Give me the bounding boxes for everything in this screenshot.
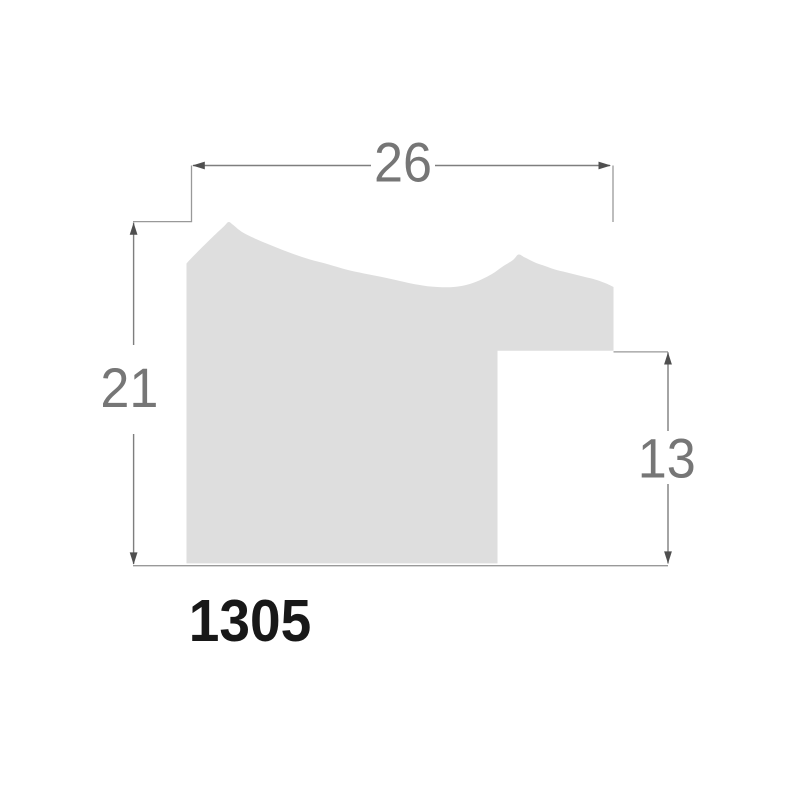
svg-text:13: 13 <box>638 427 696 490</box>
svg-text:26: 26 <box>374 130 432 193</box>
svg-text:21: 21 <box>100 356 158 419</box>
svg-text:1305: 1305 <box>189 587 312 654</box>
